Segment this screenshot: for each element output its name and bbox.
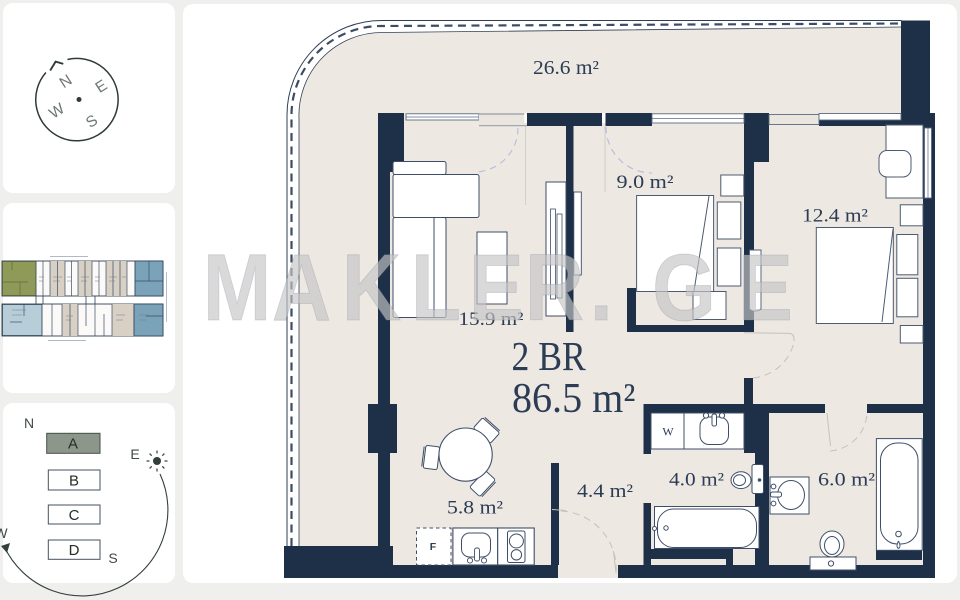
svg-text:MAKLER.GE: MAKLER.GE	[203, 234, 793, 340]
svg-text:86.5 m²: 86.5 m²	[512, 374, 635, 421]
svg-text:S: S	[108, 550, 117, 566]
svg-text:B: B	[69, 473, 79, 490]
svg-text:C: C	[69, 507, 80, 524]
svg-text:2 BR: 2 BR	[511, 335, 586, 380]
svg-text:6.0 m²: 6.0 m²	[818, 470, 875, 491]
svg-text:26.6 m²: 26.6 m²	[533, 57, 599, 79]
svg-text:4.0 m²: 4.0 m²	[669, 470, 724, 491]
svg-text:N: N	[24, 415, 34, 431]
svg-text:12.4 m²: 12.4 m²	[802, 206, 868, 227]
svg-text:F: F	[430, 541, 437, 553]
svg-text:E: E	[130, 446, 139, 462]
svg-text:5.8 m²: 5.8 m²	[447, 498, 503, 519]
svg-text:D: D	[69, 542, 80, 559]
svg-text:9.0 m²: 9.0 m²	[617, 172, 674, 193]
svg-text:A: A	[68, 436, 78, 453]
svg-text:W: W	[0, 525, 8, 541]
svg-text:W: W	[662, 425, 674, 439]
svg-text:4.4 m²: 4.4 m²	[577, 481, 633, 502]
